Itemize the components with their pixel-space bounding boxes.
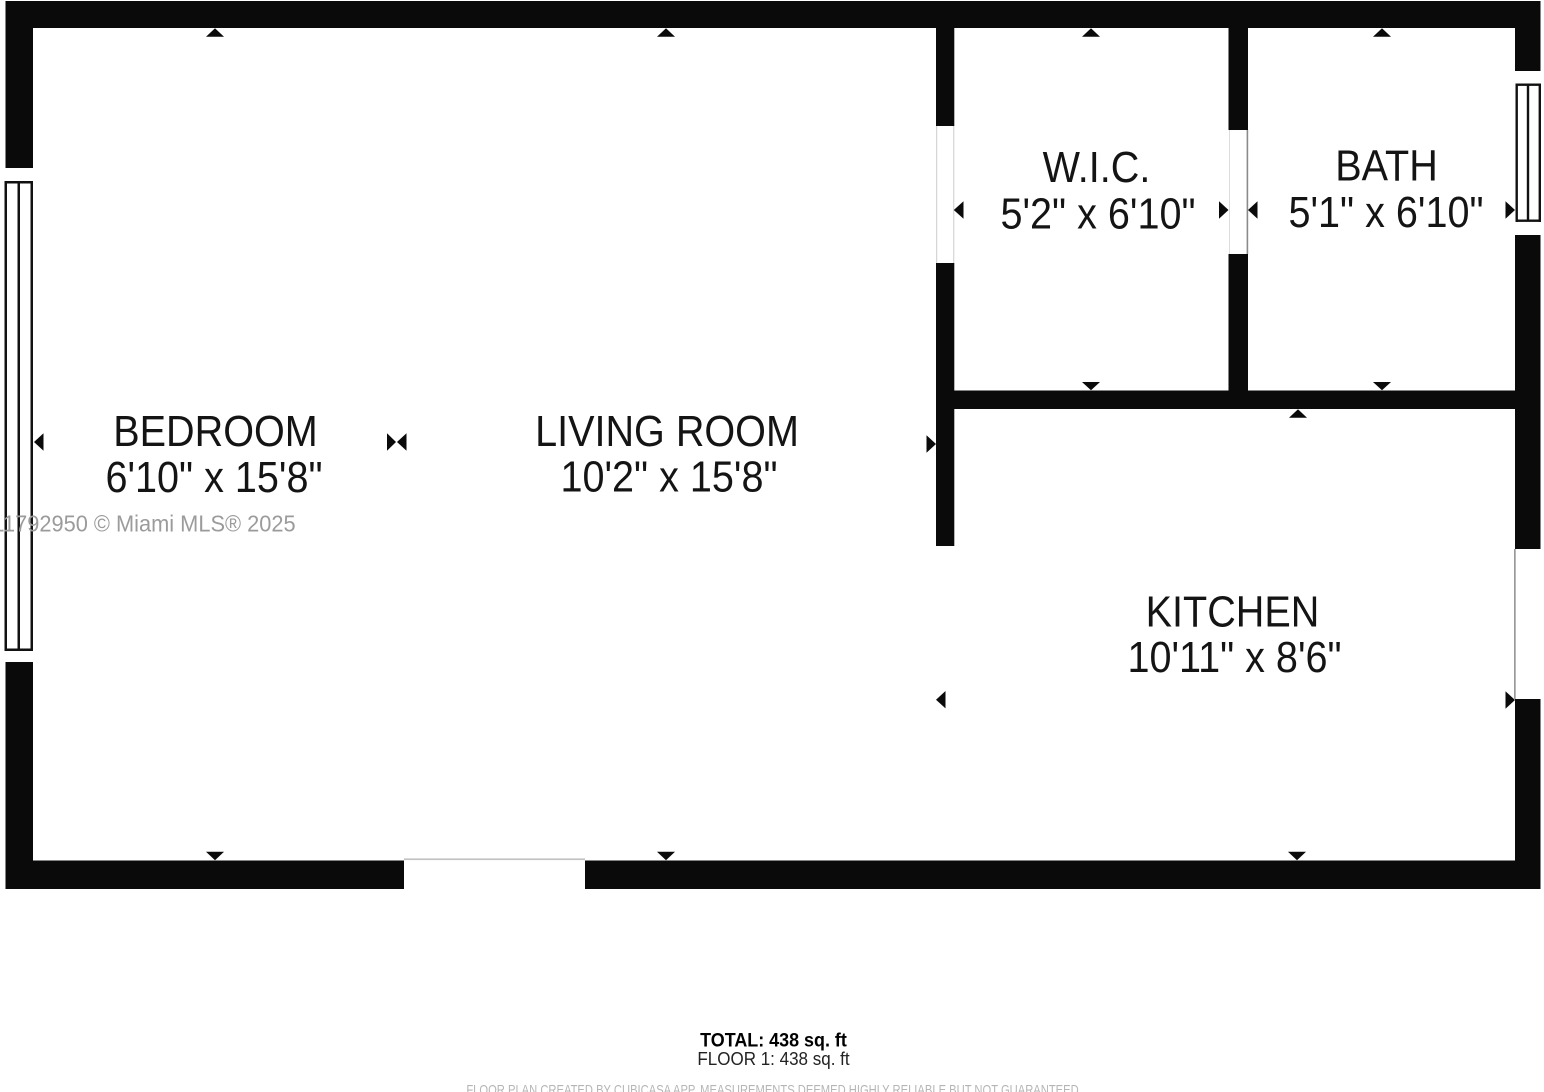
svg-text:10'2" x 15'8": 10'2" x 15'8" — [560, 452, 777, 501]
svg-text:5'2" x 6'10": 5'2" x 6'10" — [1000, 189, 1195, 238]
svg-text:6'10" x 15'8": 6'10" x 15'8" — [105, 452, 322, 501]
svg-text:KITCHEN: KITCHEN — [1146, 587, 1320, 636]
svg-text:LIVING ROOM: LIVING ROOM — [535, 406, 799, 455]
svg-text:5'1" x 6'10": 5'1" x 6'10" — [1288, 187, 1483, 236]
svg-text:FLOOR PLAN CREATED BY CUBICASA: FLOOR PLAN CREATED BY CUBICASA APP. MEAS… — [466, 1083, 1078, 1092]
svg-text:W.I.C.: W.I.C. — [1043, 142, 1151, 191]
svg-text:FLOOR 1: 438 sq. ft: FLOOR 1: 438 sq. ft — [697, 1048, 849, 1069]
svg-text:BEDROOM: BEDROOM — [113, 406, 317, 455]
svg-text:A11792950 © Miami MLS® 2025: A11792950 © Miami MLS® 2025 — [0, 511, 296, 537]
svg-text:10'11" x 8'6": 10'11" x 8'6" — [1127, 632, 1341, 681]
svg-text:BATH: BATH — [1335, 141, 1438, 190]
